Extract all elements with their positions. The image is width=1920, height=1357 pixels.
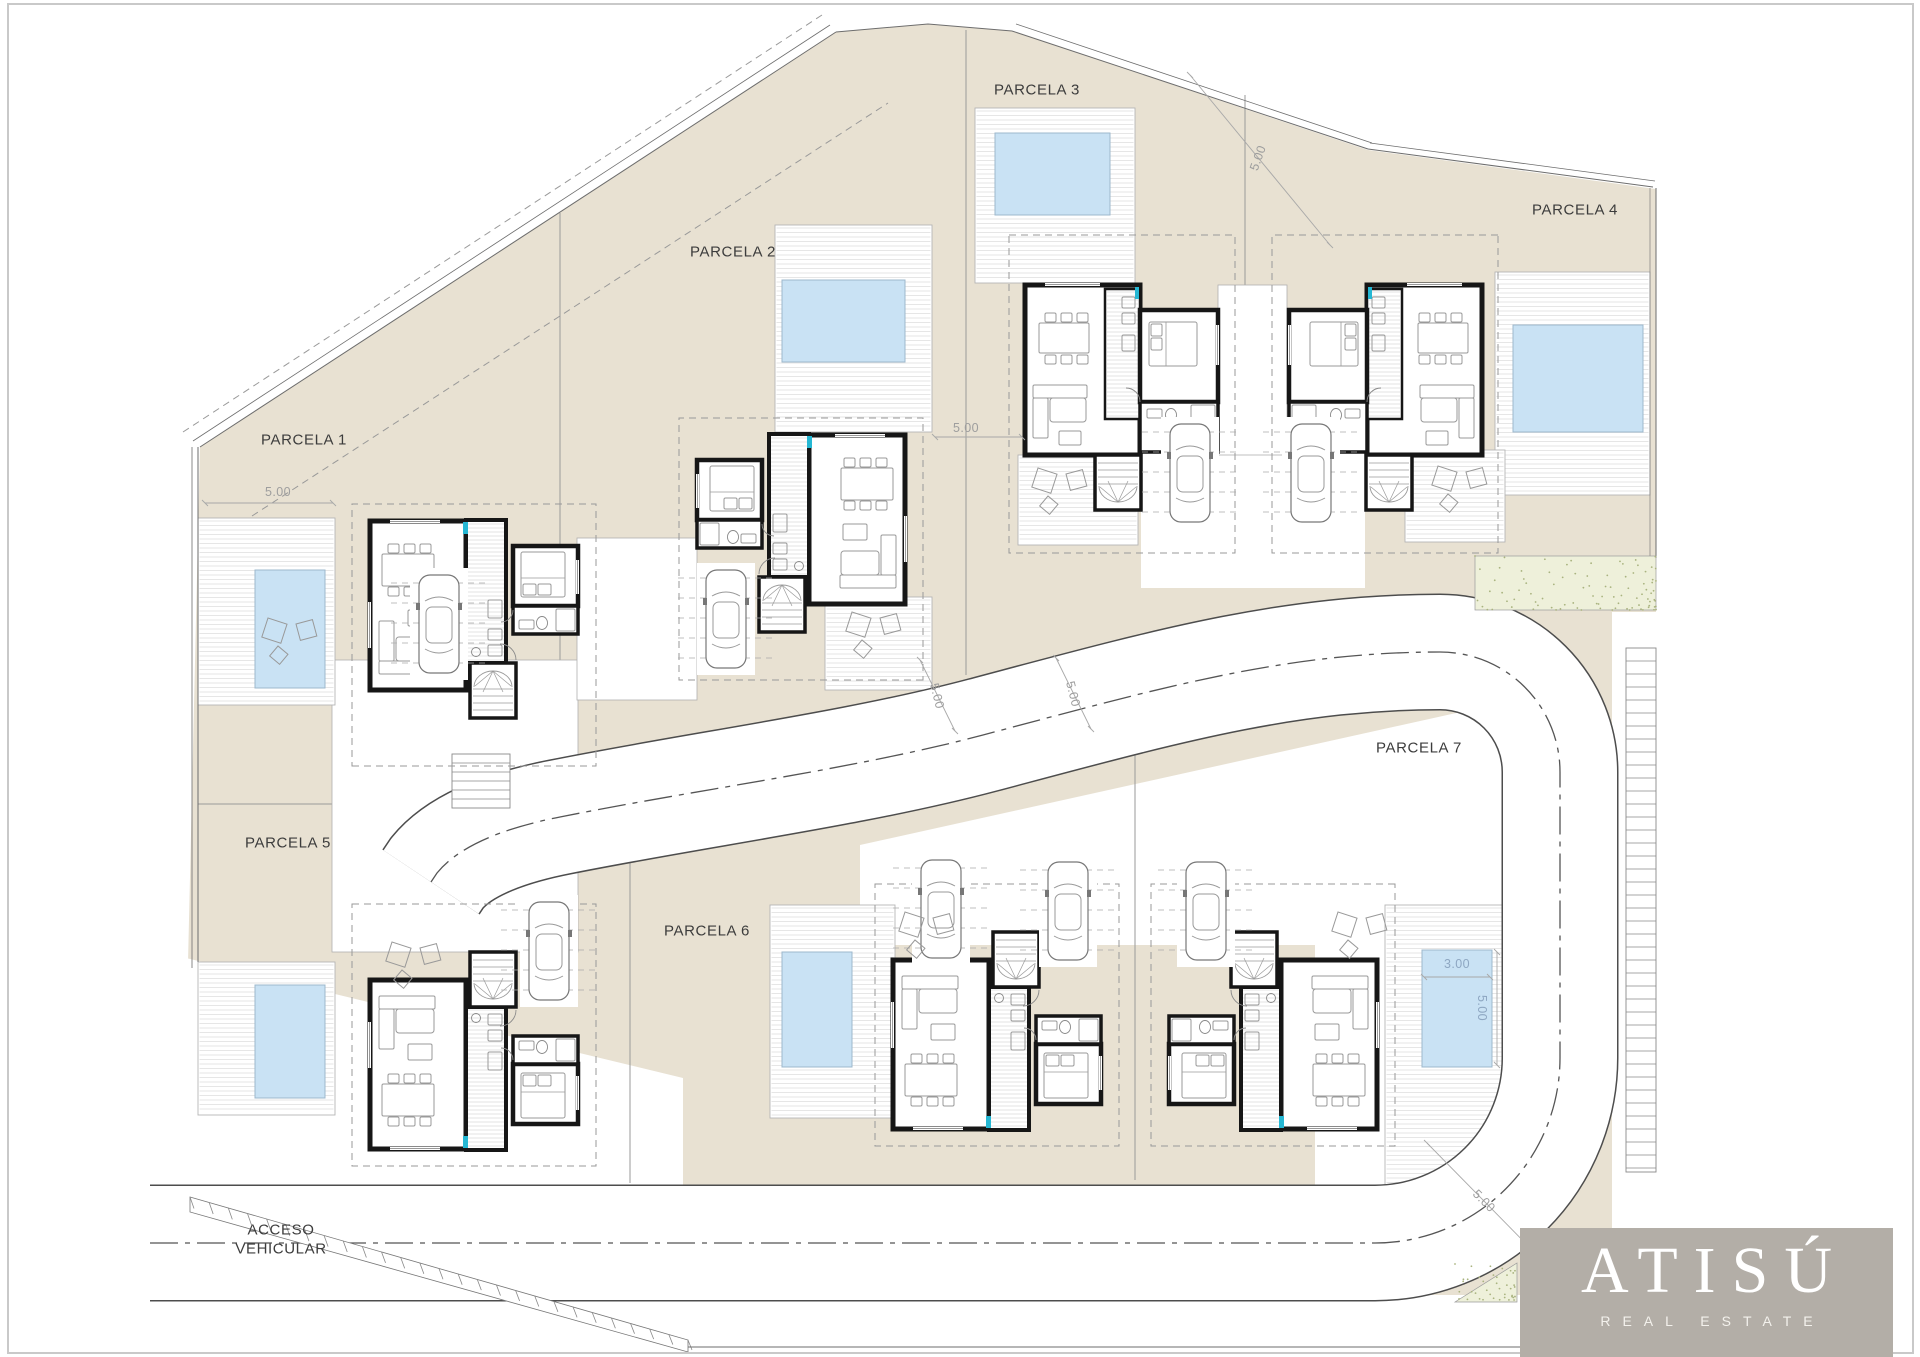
landscape-patch <box>1474 555 1657 611</box>
stairs-path <box>1626 648 1656 1172</box>
pool-deck <box>825 597 932 690</box>
driveway <box>1218 285 1287 455</box>
entry-accent <box>1279 1116 1284 1128</box>
open-area <box>1656 100 1916 1350</box>
swimming-pool <box>782 280 905 362</box>
swimming-pool <box>995 133 1110 215</box>
stairs-path <box>452 754 510 808</box>
entry-accent <box>463 522 468 534</box>
swimming-pool <box>255 985 325 1098</box>
swimming-pool <box>1513 325 1643 432</box>
entry-accent <box>1135 287 1139 299</box>
entry-accent <box>1368 287 1372 299</box>
open-area <box>100 1295 1660 1357</box>
swimming-pool <box>782 952 852 1067</box>
entry-accent <box>986 1116 991 1128</box>
entry-accent <box>463 1136 468 1148</box>
pool-deck <box>1405 450 1505 542</box>
site-plan-drawing <box>0 0 1920 1357</box>
entry-accent <box>807 436 812 448</box>
site-plan-page: ATISÚ REAL ESTATE PARCELA 1PARCELA 2PARC… <box>0 0 1920 1357</box>
swimming-pool <box>1422 950 1492 1067</box>
